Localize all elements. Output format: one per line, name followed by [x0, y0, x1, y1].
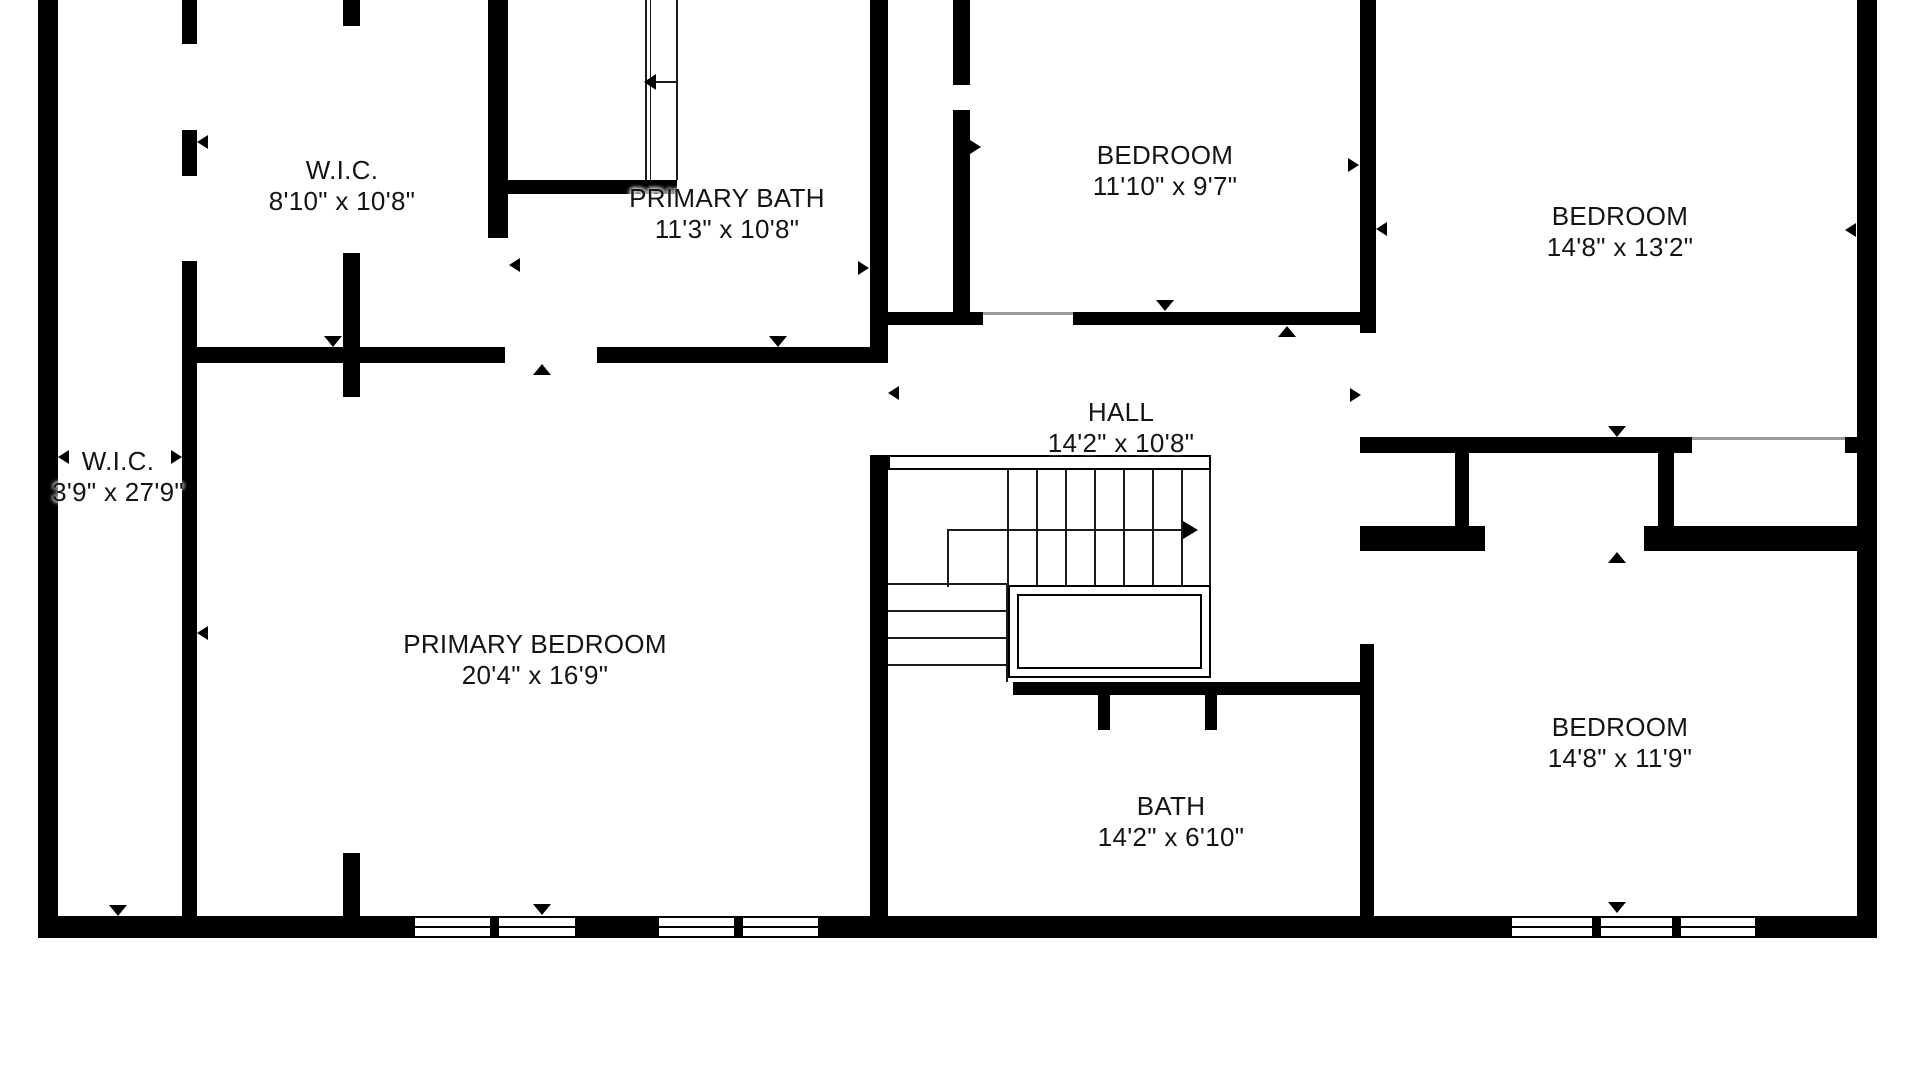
stair-flight-line: [645, 0, 647, 180]
window-mullion: [734, 918, 743, 936]
floor-plan: W.I.C. 8'10" x 10'8" PRIMARY BATH 11'3" …: [0, 0, 1920, 1080]
stair-tread: [1209, 470, 1211, 585]
stair-tread: [1123, 470, 1125, 585]
wall-stub-wic: [343, 253, 360, 397]
door-arrow-icon: [197, 135, 208, 149]
wall-wic-bath: [488, 0, 508, 238]
stair-walkline: [947, 529, 1187, 531]
wall-wic-corridor: [182, 261, 197, 938]
room-name: BEDROOM: [1547, 201, 1694, 232]
marker-up-icon: [533, 364, 551, 375]
marker-down-icon: [109, 905, 127, 916]
door-arrow-icon: [858, 261, 869, 275]
room-label-bedroom-bottom-right: BEDROOM 14'8" x 11'9": [1548, 712, 1693, 774]
stair-flight-line: [676, 0, 678, 180]
window-mullion: [1592, 918, 1601, 936]
room-name: PRIMARY BATH: [629, 183, 825, 214]
door-opening-line: [983, 312, 1073, 315]
wall-closet-bottom: [1360, 526, 1485, 551]
room-dims: 14'8" x 13'2": [1547, 232, 1694, 263]
stair-tread: [1094, 470, 1096, 585]
door-arrow-icon: [1348, 158, 1359, 172]
marker-up-icon: [1608, 552, 1626, 563]
wall-outer-right: [1857, 0, 1877, 938]
room-name: BEDROOM: [1548, 712, 1693, 743]
wall-outer-bottom: [38, 916, 413, 938]
room-label-bedroom-top-right: BEDROOM 14'8" x 13'2": [1547, 201, 1694, 263]
door-arrow-icon: [888, 386, 899, 400]
stairwell-void-inner: [1017, 594, 1202, 669]
wall-hall-bath: [1013, 682, 1374, 695]
wall-bath-primary-bedroom: [597, 347, 875, 363]
room-name: W.I.C.: [269, 155, 416, 186]
marker-down-icon: [1608, 902, 1626, 913]
room-dims: 14'8" x 11'9": [1548, 743, 1693, 774]
room-label-hall: HALL 14'2" x 10'8": [1048, 397, 1195, 459]
wall-outer-bottom: [1757, 916, 1877, 938]
wall-stub-top: [343, 0, 360, 26]
stair-tread: [1065, 470, 1067, 585]
stair-up-arrow-icon: [644, 74, 656, 90]
room-name: HALL: [1048, 397, 1195, 428]
room-label-wic-left: W.I.C. 3'9" x 27'9": [52, 446, 184, 508]
wall-outer-bottom: [577, 916, 657, 938]
room-name: BEDROOM: [1093, 140, 1238, 171]
door-arrow-icon: [1350, 388, 1361, 402]
wall-bedroom-middle-bottom: [883, 312, 983, 325]
wall-bedroom-hall: [870, 455, 888, 938]
room-dims: 14'2" x 10'8": [1048, 428, 1195, 459]
room-dims: 14'2" x 6'10": [1098, 822, 1245, 853]
wall-bedroom-right-bottom: [1360, 437, 1692, 453]
door-arrow-icon: [970, 140, 981, 154]
stair-flight-line: [650, 0, 651, 180]
room-label-bath: BATH 14'2" x 6'10": [1098, 791, 1245, 853]
wall-bedroom-middle-left: [953, 110, 970, 312]
room-name: W.I.C.: [52, 446, 184, 477]
wall-closet-bottom: [1644, 526, 1877, 551]
room-dims: 11'10" x 9'7": [1093, 171, 1238, 202]
stair-up-line: [654, 81, 678, 83]
window-glass-line: [1512, 926, 1755, 928]
stair-tread: [888, 610, 1008, 612]
wall-outer-bottom: [820, 916, 1510, 938]
wall-wic-corridor: [182, 0, 197, 44]
room-label-wic-top: W.I.C. 8'10" x 10'8": [269, 155, 416, 217]
stair-direction-arrow-icon: [1183, 521, 1198, 539]
stair-walkline: [947, 530, 949, 587]
stair-tread: [1036, 470, 1038, 585]
window-mullion: [490, 918, 499, 936]
stair-tread: [1152, 470, 1154, 585]
room-dims: 20'4" x 16'9": [403, 660, 667, 691]
room-name: PRIMARY BEDROOM: [403, 629, 667, 660]
wall-stub-bottom: [343, 853, 360, 916]
window: [1510, 916, 1757, 938]
wall-bath-jamb: [1098, 695, 1110, 730]
closet-opening-line: [1692, 437, 1845, 440]
wall-bedroom-right-left: [1360, 0, 1376, 333]
door-arrow-icon: [509, 258, 520, 272]
window-mullion: [1672, 918, 1681, 936]
room-dims: 11'3" x 10'8": [629, 214, 825, 245]
marker-up-icon: [1278, 326, 1296, 337]
room-dims: 3'9" x 27'9": [52, 477, 184, 508]
marker-down-icon: [769, 336, 787, 347]
marker-down-icon: [1608, 426, 1626, 437]
wall-wic-primary-bedroom: [197, 347, 505, 363]
stair-tread: [888, 664, 1008, 666]
room-label-bedroom-middle: BEDROOM 11'10" x 9'7": [1093, 140, 1238, 202]
wall-wic-corridor: [182, 130, 197, 176]
stair-tread: [1007, 470, 1009, 585]
wall-bath-hall: [870, 0, 888, 363]
wall-bedroom-middle-left: [953, 0, 970, 85]
room-label-primary-bath: PRIMARY BATH 11'3" x 10'8": [629, 183, 825, 245]
wall-bath-jamb: [1205, 695, 1217, 730]
stair-tread: [888, 637, 1008, 639]
room-label-primary-bedroom: PRIMARY BEDROOM 20'4" x 16'9": [403, 629, 667, 691]
marker-down-icon: [533, 904, 551, 915]
door-arrow-icon: [1376, 222, 1387, 236]
wall-closet-jamb-left: [1455, 453, 1469, 526]
door-arrow-icon: [1845, 223, 1856, 237]
window: [413, 916, 577, 938]
room-dims: 8'10" x 10'8": [269, 186, 416, 217]
door-arrow-icon: [197, 626, 208, 640]
window: [657, 916, 820, 938]
wall-closet-jamb-right: [1658, 453, 1674, 526]
wall-bedroom-middle-bottom: [1073, 312, 1363, 325]
room-name: BATH: [1098, 791, 1245, 822]
marker-down-icon: [1156, 300, 1174, 311]
wall-bedroom-right-bottom: [1845, 437, 1877, 453]
marker-down-icon: [324, 336, 342, 347]
